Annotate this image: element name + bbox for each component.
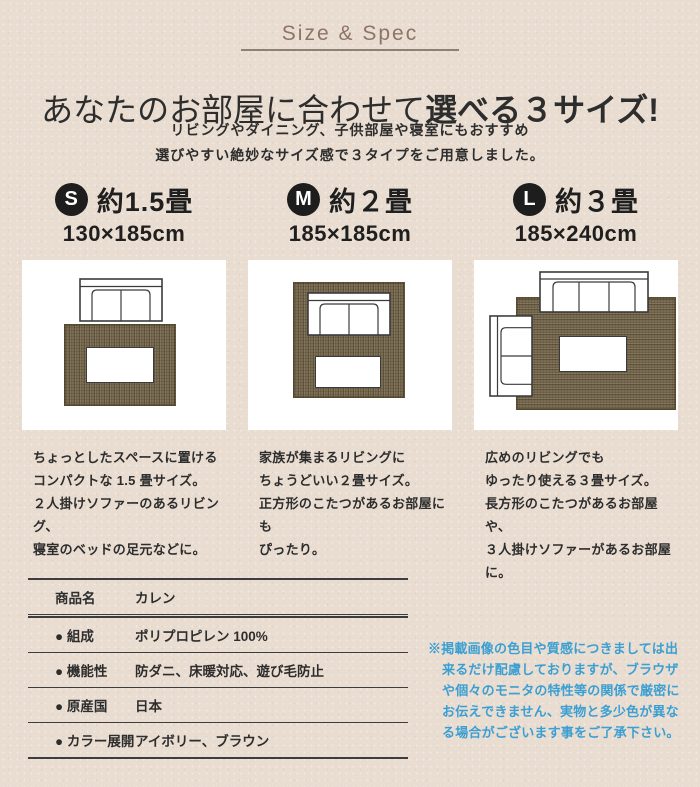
size-card-l: L 約３畳 185×240cm [474,180,678,584]
desc-line: 長方形のこたつがあるお部屋や、 [485,492,678,538]
desc-line: コンパクトな 1.5 畳サイズ。 [33,469,226,492]
spec-label: ● カラー展開 [55,730,135,750]
rug-illustration [516,297,676,410]
spec-label: ● 原産国 [55,695,135,715]
size-card-s: S 約1.5畳 130×185cm ちょっとしたスペースに [22,180,226,584]
spec-row-product-name: 商品名 カレン [28,580,408,615]
spec-value: カレン [135,587,176,607]
table-illustration [559,336,627,372]
desc-line: 広めのリビングでも [485,446,678,469]
desc-line: ちょうどいい２畳サイズ。 [259,469,452,492]
dimensions-text: 130×185cm [63,221,186,247]
size-description: 広めのリビングでも ゆったり使える３畳サイズ。 長方形のこたつがあるお部屋や、 … [474,446,678,584]
desc-line: 寝室のベッドの足元などに。 [33,538,226,561]
size-label: 約３畳 [555,180,639,219]
spec-label: 商品名 [55,587,135,607]
size-description: ちょっとしたスペースに置ける コンパクトな 1.5 畳サイズ。 ２人掛けソファー… [22,446,226,561]
sofa-top-view-icon [539,271,649,313]
size-card-s-header: S 約1.5畳 [55,180,194,218]
l-badge: L [513,183,546,216]
size-spec-page: Size & Spec あなたのお部屋に合わせて選べる３サイズ! リビングやダイ… [0,0,700,787]
subtitle-line-2: 選びやすい絶妙なサイズ感で３タイプをご用意しました。 [0,143,700,168]
desc-line: ゆったり使える３畳サイズ。 [485,469,678,492]
dimensions-text: 185×240cm [515,221,638,247]
size-description: 家族が集まるリビングに ちょうどいい２畳サイズ。 正方形のこたつがあるお部屋にも… [248,446,452,561]
sofa-top-view-icon [307,292,391,336]
table-illustration [86,347,154,383]
spec-label: ● 組成 [55,625,135,645]
spec-value: アイボリー、ブラウン [135,730,269,750]
rug-illustration [64,324,176,406]
section-label: Size & Spec [282,22,418,45]
spec-value: 防ダニ、床暖対応、遊び毛防止 [135,660,324,680]
spec-value: ポリプロピレン 100% [135,625,268,645]
desc-line: ちょっとしたスペースに置ける [33,446,226,469]
subtitle: リビングやダイニング、子供部屋や寝室にもおすすめ 選びやすい絶妙なサイズ感で３タ… [0,118,700,168]
size-card-m: M 約２畳 185×185cm 家族が集まるリビングに [248,180,452,584]
section-label-underline: Size & Spec [241,22,459,51]
spec-row-composition: ● 組成 ポリプロピレン 100% [28,618,408,653]
desc-line: 正方形のこたつがあるお部屋にも [259,492,452,538]
table-illustration [315,356,381,388]
spec-label: ● 機能性 [55,660,135,680]
dimensions-text: 185×185cm [289,221,412,247]
desc-line: ぴったり。 [259,538,452,561]
desc-line: 家族が集まるリビングに [259,446,452,469]
color-disclaimer-note: ※掲載画像の色目や質感につきましては出来るだけ配慮しておりますが、ブラウザや個々… [428,638,686,743]
size-label: 約２畳 [329,180,413,219]
subtitle-line-1: リビングやダイニング、子供部屋や寝室にもおすすめ [0,118,700,143]
room-illustration-l [474,260,678,430]
size-label: 約1.5畳 [97,180,194,219]
desc-line: ２人掛けソファーのあるリビング、 [33,492,226,538]
sofa-top-view-icon [79,278,163,322]
room-illustration-s [22,260,226,430]
spec-row-functionality: ● 機能性 防ダニ、床暖対応、遊び毛防止 [28,653,408,688]
spec-table: 商品名 カレン ● 組成 ポリプロピレン 100% ● 機能性 防ダニ、床暖対応… [28,578,408,759]
spec-row-colors: ● カラー展開 アイボリー、ブラウン [28,723,408,759]
spec-row-origin: ● 原産国 日本 [28,688,408,723]
sofa-top-view-vertical-icon [489,315,533,397]
size-card-l-header: L 約３畳 [513,180,639,218]
size-card-m-header: M 約２畳 [287,180,413,218]
m-badge: M [287,183,320,216]
room-illustration-m [248,260,452,430]
desc-line: ３人掛けソファーがあるお部屋に。 [485,538,678,584]
size-cards: S 約1.5畳 130×185cm ちょっとしたスペースに [0,180,700,584]
s-badge: S [55,183,88,216]
spec-value: 日本 [135,695,162,715]
